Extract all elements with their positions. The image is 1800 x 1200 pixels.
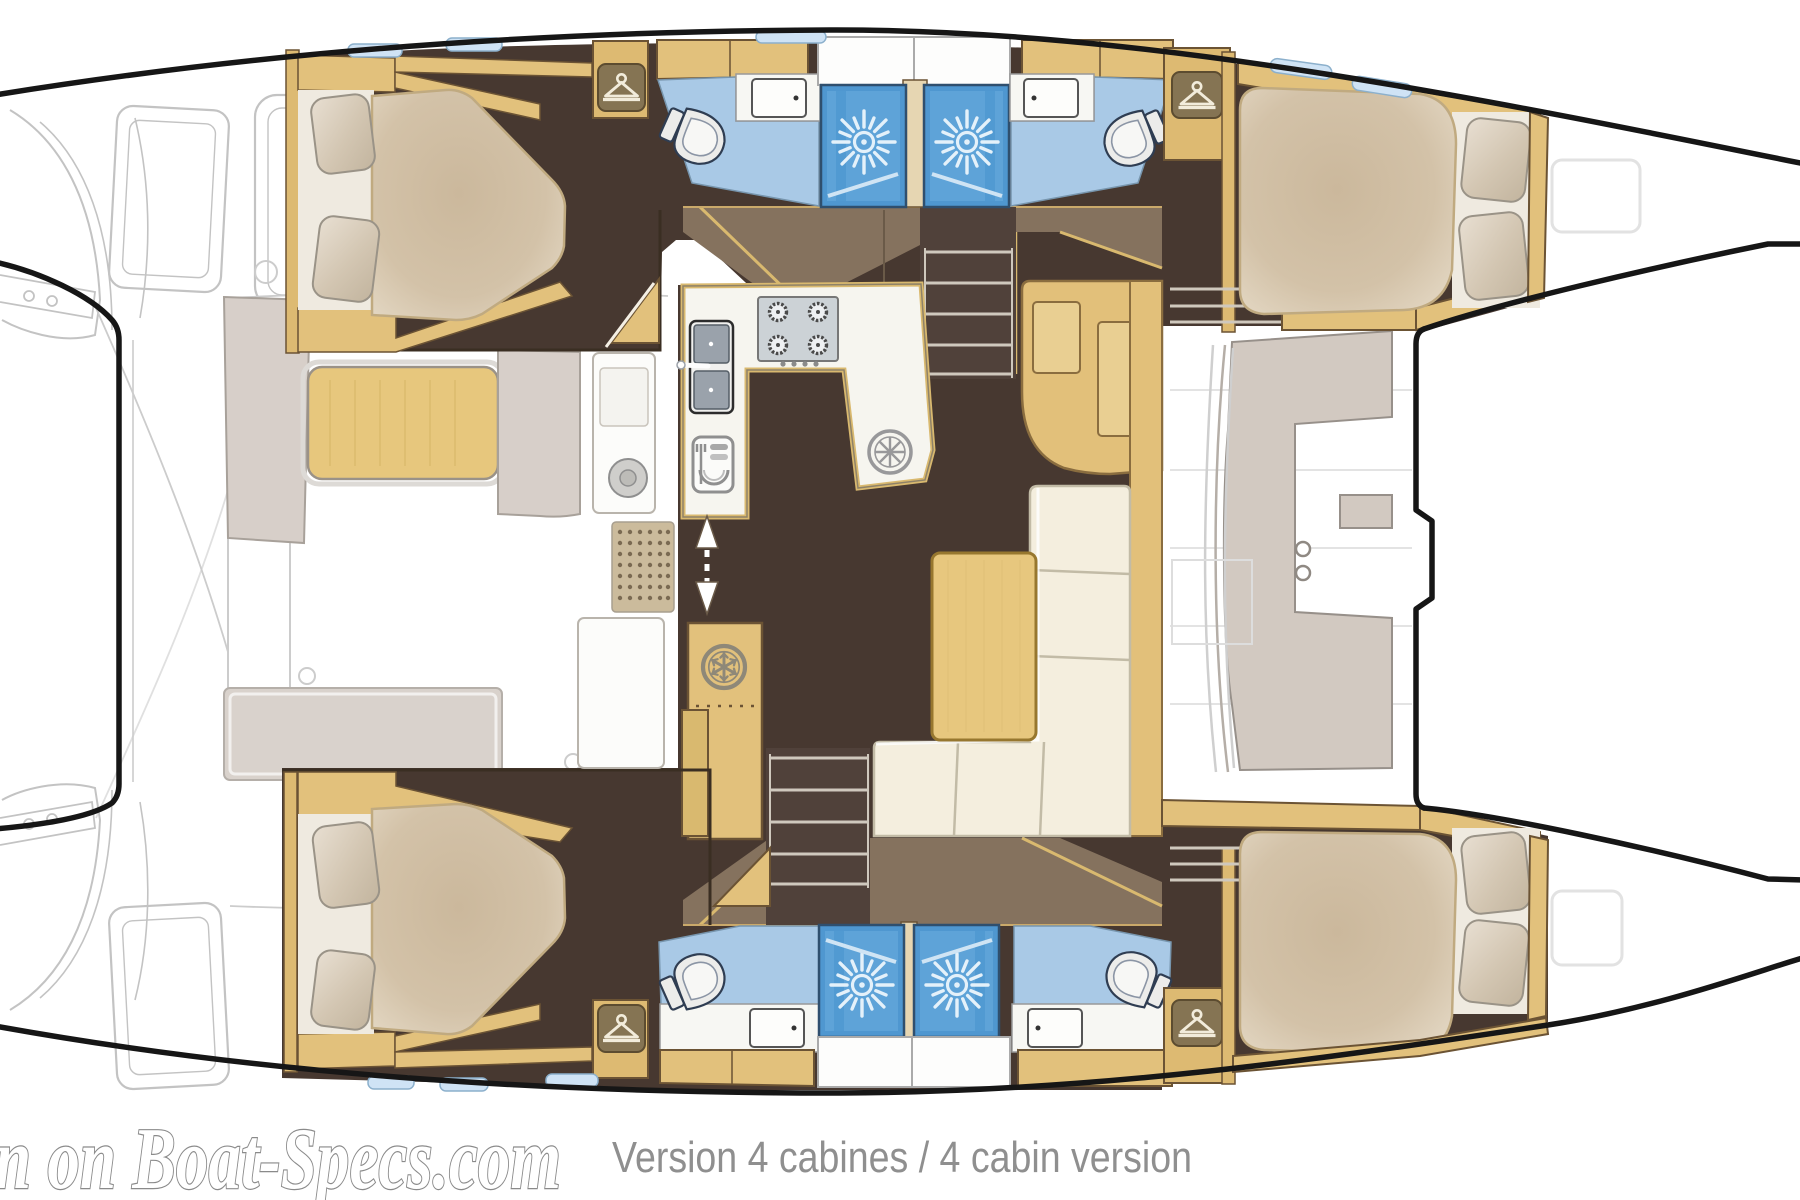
- svg-text:Version 4 cabines / 4 cabin ve: Version 4 cabines / 4 cabin version: [612, 1133, 1192, 1182]
- svg-text:en on Boat-Specs.com: en on Boat-Specs.com: [0, 1110, 561, 1200]
